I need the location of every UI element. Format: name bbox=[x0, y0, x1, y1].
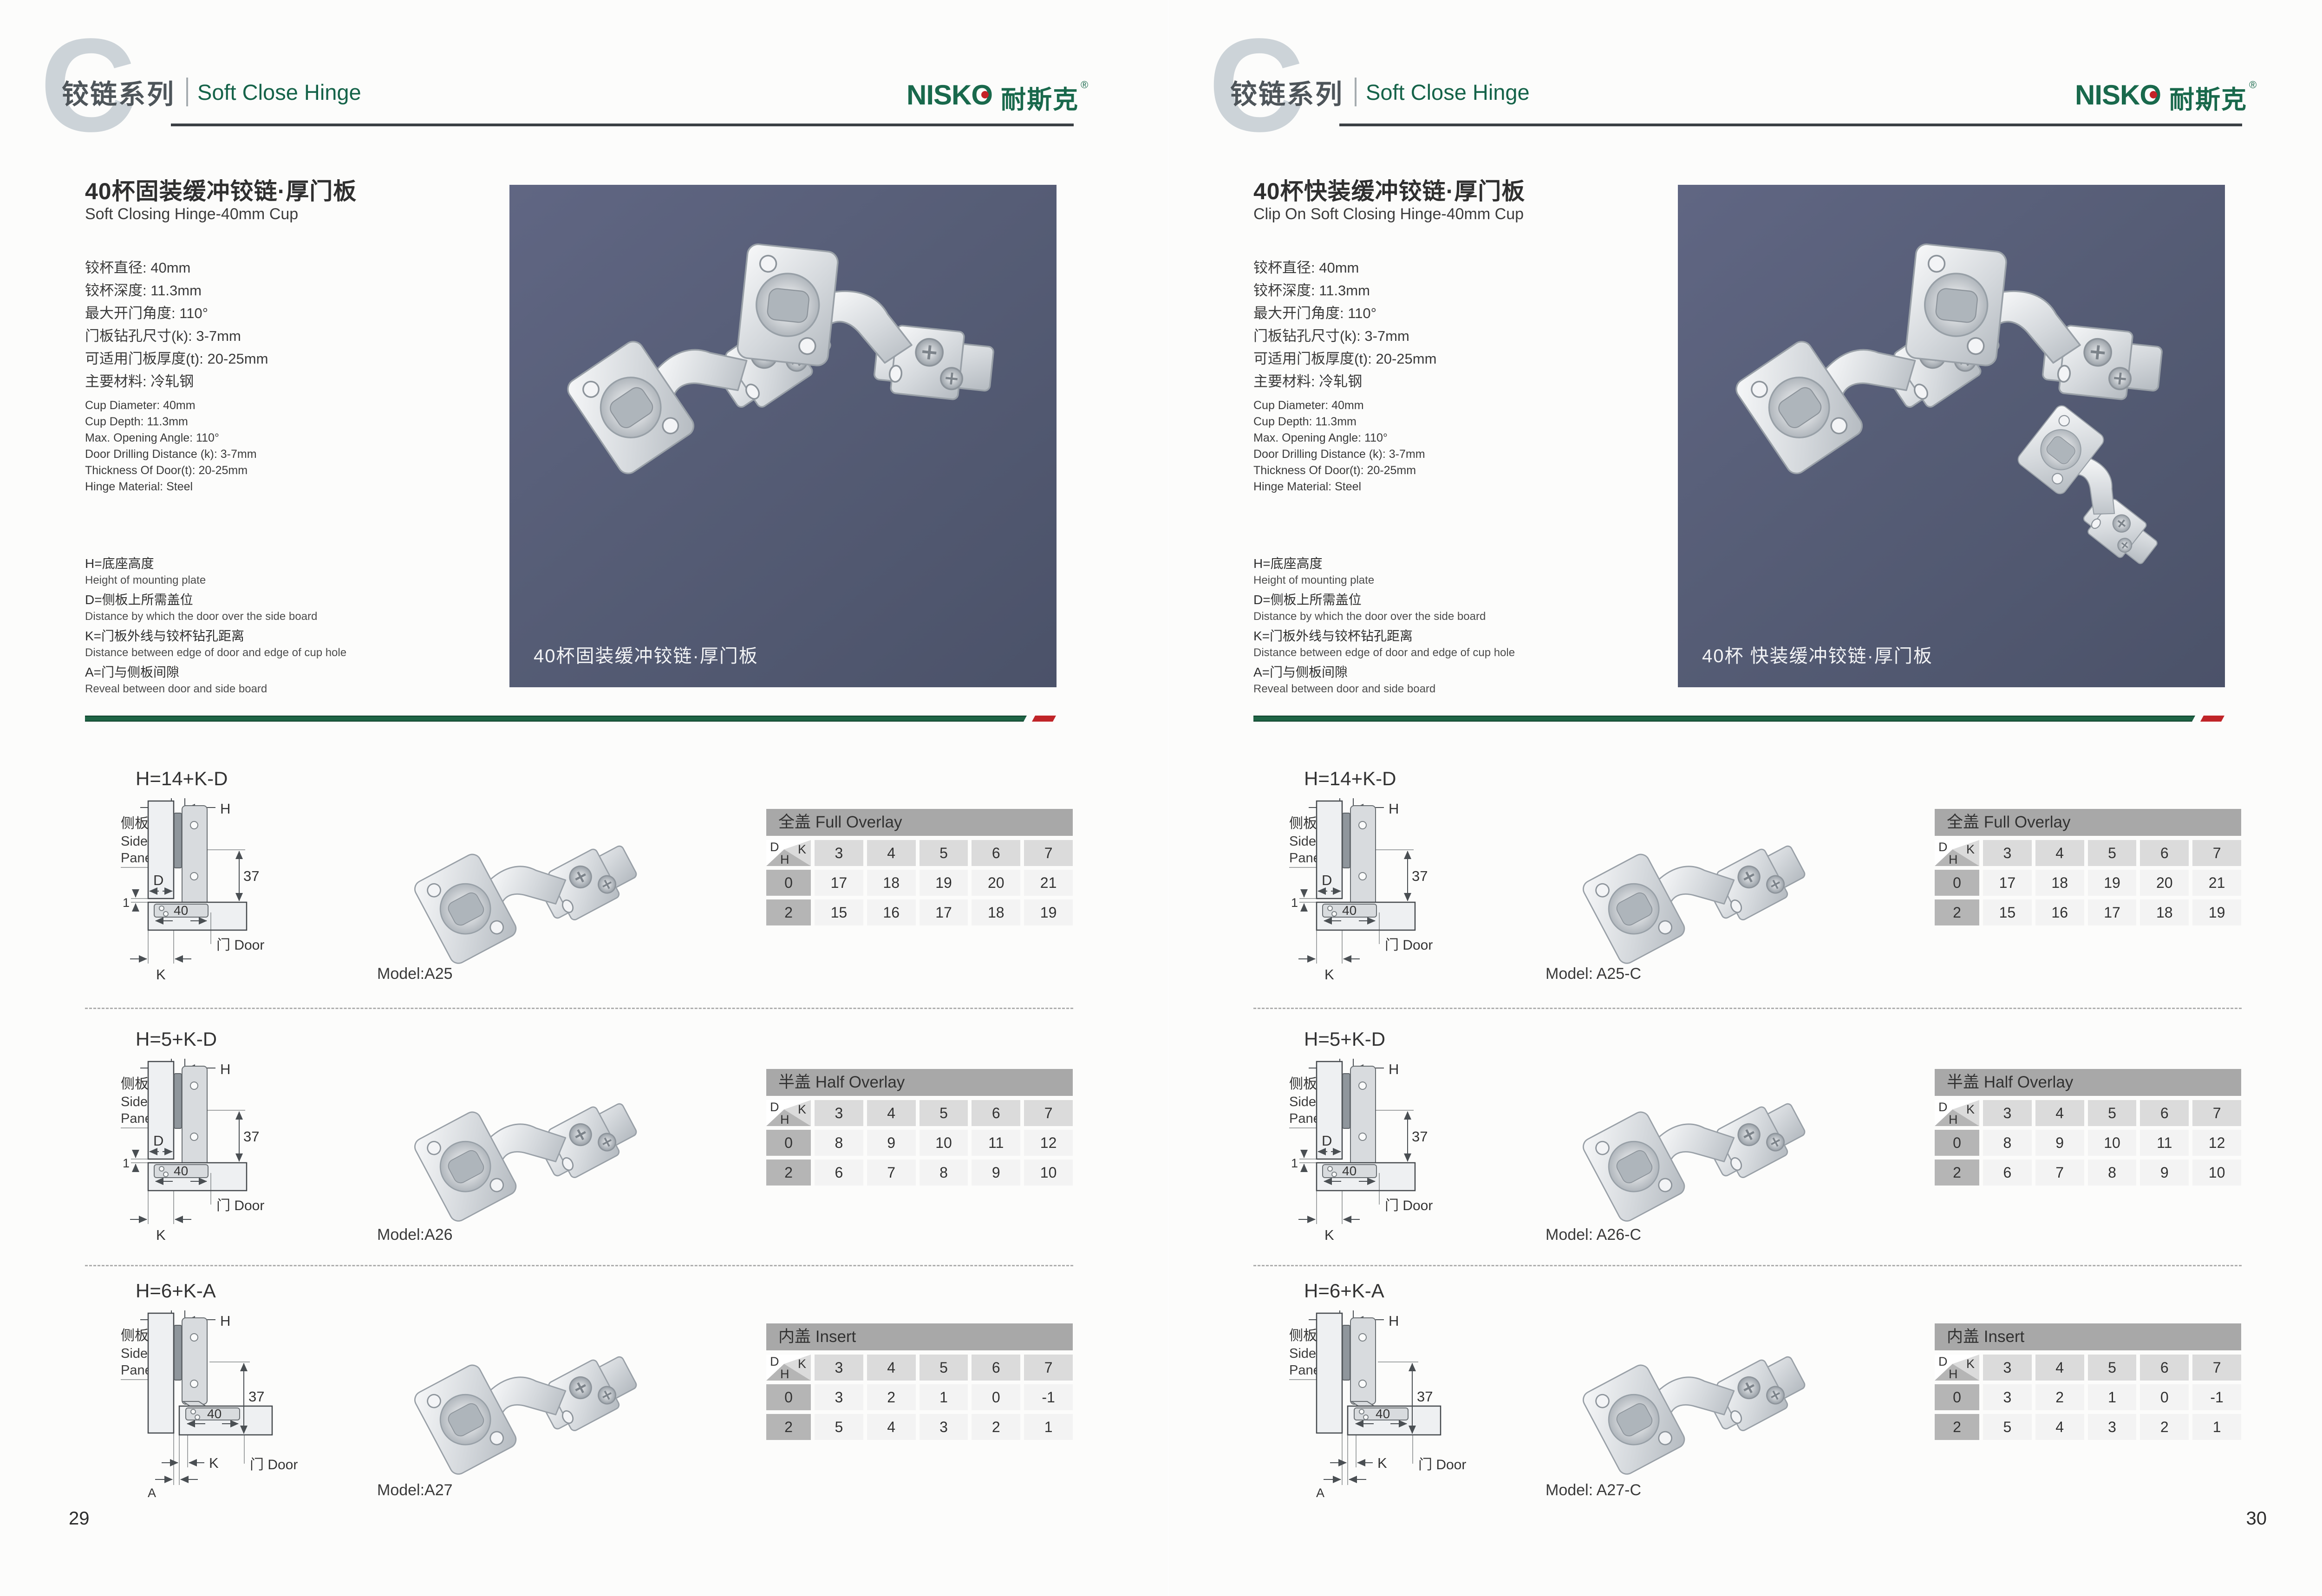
value-cell: 16 bbox=[867, 899, 916, 925]
photo-caption: 40杯 快装缓冲铰链·厚门板 bbox=[1702, 641, 1933, 668]
svg-text:Side: Side bbox=[121, 1346, 148, 1361]
overlay-table: 全盖 Full Overlay DKH345670171819202121516… bbox=[766, 809, 1073, 925]
k-header-cell: 5 bbox=[920, 1355, 968, 1381]
hinge-product-image bbox=[392, 1298, 652, 1484]
technical-diagram: H=5+K-D H 侧板 Side Panel 40 37 D 1 K 门 Do… bbox=[1273, 1015, 1530, 1250]
h-row-label-cell: 0 bbox=[1935, 1130, 1979, 1156]
spec-line: 最大开门角度: 110° bbox=[1253, 302, 1436, 325]
diagram-formula: H=14+K-D bbox=[136, 768, 228, 789]
svg-text:K: K bbox=[1377, 1455, 1387, 1471]
value-cell: 1 bbox=[2088, 1384, 2137, 1410]
value-cell: 2 bbox=[867, 1384, 916, 1410]
diagram-formula: H=5+K-D bbox=[136, 1028, 217, 1050]
value-cell: 18 bbox=[2035, 870, 2084, 896]
svg-text:Side: Side bbox=[1289, 1094, 1316, 1109]
spec-line: Door Drilling Distance (k): 3-7mm bbox=[1253, 446, 1425, 463]
value-cell: 17 bbox=[2088, 899, 2137, 925]
svg-text:1: 1 bbox=[1291, 1156, 1298, 1170]
overlay-table: 内盖 Insert DKH3456703210-1254321 bbox=[766, 1323, 1073, 1440]
svg-text:37: 37 bbox=[1412, 868, 1428, 884]
svg-text:门 Door: 门 Door bbox=[1418, 1457, 1466, 1472]
series-title-en: Soft Close Hinge bbox=[1366, 79, 1530, 105]
svg-text:侧板: 侧板 bbox=[121, 1328, 149, 1343]
svg-text:37: 37 bbox=[248, 1388, 264, 1405]
table-corner-cell: DKH bbox=[766, 840, 811, 866]
value-cell: 6 bbox=[815, 1160, 863, 1186]
table-title-en: Half Overlay bbox=[1984, 1073, 2074, 1091]
legend-zh: H=底座高度 bbox=[85, 554, 346, 573]
legend-en: Height of mounting plate bbox=[1253, 573, 1515, 587]
spec-line: 铰杯深度: 11.3mm bbox=[1253, 279, 1436, 302]
product-photo: 40杯 快装缓冲铰链·厚门板 bbox=[1678, 185, 2225, 687]
catalog-page-left: C 铰链系列 Soft Close Hinge NISKO 耐斯克 ® 40杯固… bbox=[0, 0, 1168, 1596]
legend-zh: D=侧板上所需盖位 bbox=[1253, 591, 1515, 609]
svg-text:门 Door: 门 Door bbox=[250, 1457, 298, 1472]
k-header-cell: 4 bbox=[2035, 840, 2084, 866]
model-label: Model:A25 bbox=[377, 965, 453, 983]
k-header-cell: 5 bbox=[2088, 1100, 2137, 1126]
k-header-cell: 3 bbox=[1983, 840, 2032, 866]
table-grid: DKH345670891011122678910 bbox=[1935, 1100, 2241, 1186]
specs-en: Cup Diameter: 40mm Cup Depth: 11.3mm Max… bbox=[85, 397, 257, 495]
table-title-zh: 半盖 bbox=[1947, 1073, 1979, 1091]
table-title: 全盖 Full Overlay bbox=[766, 809, 1073, 836]
value-cell: 17 bbox=[1983, 870, 2032, 896]
hinge-product-image bbox=[1561, 1298, 1821, 1484]
series-title-zh: 铰链系列 bbox=[62, 72, 175, 111]
row-divider bbox=[1253, 1265, 2242, 1266]
svg-text:1: 1 bbox=[123, 896, 130, 910]
table-grid: DKH345670171819202121516171819 bbox=[1935, 840, 2241, 925]
technical-diagram: H=14+K-D H 侧板 Side Panel 40 37 D 1 K 门 D… bbox=[1273, 755, 1530, 989]
k-header-cell: 7 bbox=[1024, 1100, 1073, 1126]
separator-green-bar bbox=[1253, 716, 2195, 722]
svg-text:Side: Side bbox=[1289, 834, 1316, 849]
k-header-cell: 3 bbox=[1983, 1100, 2032, 1126]
legend-zh: D=侧板上所需盖位 bbox=[85, 591, 346, 609]
logo-red-dot-icon bbox=[2150, 91, 2157, 98]
table-title: 全盖 Full Overlay bbox=[1935, 809, 2241, 836]
value-cell: 10 bbox=[1024, 1160, 1073, 1186]
spec-line: Max. Opening Angle: 110° bbox=[85, 430, 257, 446]
svg-text:门 Door: 门 Door bbox=[216, 1198, 264, 1213]
corner-k-label: K bbox=[798, 842, 806, 857]
row-divider bbox=[85, 1265, 1073, 1266]
k-header-cell: 4 bbox=[867, 1100, 916, 1126]
spec-line: Cup Diameter: 40mm bbox=[85, 397, 257, 414]
row-divider bbox=[1253, 1008, 2242, 1009]
table-title: 半盖 Half Overlay bbox=[1935, 1069, 2241, 1096]
corner-h-label: H bbox=[1949, 1367, 1958, 1381]
svg-text:37: 37 bbox=[243, 868, 259, 884]
table-title-zh: 内盖 bbox=[1947, 1328, 1979, 1346]
table-corner-cell: DKH bbox=[766, 1100, 811, 1126]
spec-line: Thickness Of Door(t): 20-25mm bbox=[85, 463, 257, 479]
value-cell: 3 bbox=[2088, 1414, 2137, 1440]
specs-en: Cup Diameter: 40mm Cup Depth: 11.3mm Max… bbox=[1253, 397, 1425, 495]
table-title-zh: 半盖 bbox=[778, 1073, 811, 1091]
value-cell: 7 bbox=[2035, 1160, 2084, 1186]
dimension-legend: H=底座高度 Height of mounting plate D=侧板上所需盖… bbox=[85, 554, 346, 699]
product-title-en: Soft Closing Hinge-40mm Cup bbox=[85, 205, 298, 223]
value-cell: 9 bbox=[972, 1160, 1020, 1186]
table-grid: DKH3456703210-1254321 bbox=[766, 1355, 1073, 1440]
table-grid: DKH3456703210-1254321 bbox=[1935, 1355, 2241, 1440]
value-cell: -1 bbox=[2192, 1384, 2241, 1410]
value-cell: 3 bbox=[815, 1384, 863, 1410]
table-title: 半盖 Half Overlay bbox=[766, 1069, 1073, 1096]
legend-zh: A=门与侧板间隙 bbox=[1253, 663, 1515, 682]
svg-text:40: 40 bbox=[207, 1407, 222, 1421]
overlay-table: 半盖 Half Overlay DKH345670891011122678910 bbox=[766, 1069, 1073, 1186]
value-cell: 3 bbox=[920, 1414, 968, 1440]
value-cell: 2 bbox=[972, 1414, 1020, 1440]
svg-text:H: H bbox=[220, 1061, 230, 1077]
k-header-cell: 6 bbox=[972, 840, 1020, 866]
legend-en: Height of mounting plate bbox=[85, 573, 346, 587]
table-title-zh: 全盖 bbox=[778, 813, 811, 831]
spec-line: Hinge Material: Steel bbox=[1253, 479, 1425, 495]
table-grid: DKH345670891011122678910 bbox=[766, 1100, 1073, 1186]
spec-line: 铰杯直径: 40mm bbox=[1253, 256, 1436, 279]
table-corner-cell: DKH bbox=[1935, 1355, 1979, 1381]
h-row-label-cell: 0 bbox=[1935, 1384, 1979, 1410]
spec-line: 主要材料: 冷轧钢 bbox=[1253, 370, 1436, 393]
value-cell: 16 bbox=[2035, 899, 2084, 925]
k-header-cell: 6 bbox=[2140, 840, 2189, 866]
value-cell: 10 bbox=[2192, 1160, 2241, 1186]
specs-zh: 铰杯直径: 40mm 铰杯深度: 11.3mm 最大开门角度: 110° 门板钻… bbox=[1253, 256, 1436, 393]
value-cell: 20 bbox=[972, 870, 1020, 896]
k-header-cell: 6 bbox=[2140, 1355, 2189, 1381]
product-title-en: Clip On Soft Closing Hinge-40mm Cup bbox=[1253, 205, 1524, 223]
svg-text:H: H bbox=[220, 1313, 230, 1329]
corner-k-label: K bbox=[1966, 842, 1975, 857]
legend-en: Distance by which the door over the side… bbox=[1253, 609, 1515, 624]
spec-line: 可适用门板厚度(t): 20-25mm bbox=[1253, 347, 1436, 370]
table-title-en: Insert bbox=[1984, 1328, 2025, 1346]
technical-diagram: H=6+K-A H 侧板 Side Panel 40 37 K A 门 Door bbox=[105, 1267, 361, 1501]
value-cell: 7 bbox=[867, 1160, 916, 1186]
value-cell: 12 bbox=[2192, 1130, 2241, 1156]
svg-text:D: D bbox=[1322, 1133, 1332, 1149]
svg-text:K: K bbox=[156, 966, 166, 983]
hinge-product-image bbox=[392, 787, 652, 973]
k-header-cell: 7 bbox=[1024, 840, 1073, 866]
product-photo: 40杯固装缓冲铰链·厚门板 bbox=[509, 185, 1057, 687]
table-title-en: Full Overlay bbox=[1984, 813, 2071, 831]
svg-text:37: 37 bbox=[243, 1128, 259, 1145]
value-cell: 1 bbox=[2192, 1414, 2241, 1440]
corner-k-label: K bbox=[798, 1357, 806, 1371]
svg-text:D: D bbox=[1322, 872, 1332, 888]
svg-text:H: H bbox=[220, 801, 230, 817]
h-row-label-cell: 2 bbox=[1935, 1160, 1979, 1186]
series-title-en: Soft Close Hinge bbox=[197, 79, 361, 105]
technical-diagram: H=5+K-D H 侧板 Side Panel 40 37 D 1 K 门 Do… bbox=[105, 1015, 361, 1250]
svg-text:Side: Side bbox=[1289, 1346, 1316, 1361]
product-title-zh: 40杯固装缓冲铰链·厚门板 bbox=[85, 173, 357, 206]
svg-text:侧板: 侧板 bbox=[1289, 816, 1317, 831]
k-header-cell: 7 bbox=[2192, 1100, 2241, 1126]
corner-h-label: H bbox=[780, 1113, 789, 1126]
corner-h-label: H bbox=[780, 853, 789, 866]
value-cell: 8 bbox=[1983, 1130, 2032, 1156]
corner-k-label: K bbox=[1966, 1102, 1975, 1117]
legend-zh: K=门板外线与铰杯钻孔距离 bbox=[85, 627, 346, 645]
model-label: Model: A27-C bbox=[1546, 1481, 1641, 1499]
svg-text:H: H bbox=[1389, 801, 1399, 817]
hinge-product-image bbox=[1561, 1045, 1821, 1231]
h-row-label-cell: 2 bbox=[1935, 1414, 1979, 1440]
legend-en: Reveal between door and side board bbox=[1253, 682, 1515, 696]
header-divider bbox=[1355, 78, 1357, 106]
svg-text:1: 1 bbox=[1291, 896, 1298, 910]
value-cell: 9 bbox=[2035, 1130, 2084, 1156]
k-header-cell: 6 bbox=[972, 1100, 1020, 1126]
model-label: Model: A25-C bbox=[1546, 965, 1641, 983]
header-rule bbox=[171, 124, 1074, 126]
table-grid: DKH345670171819202121516171819 bbox=[766, 840, 1073, 925]
k-header-cell: 4 bbox=[2035, 1100, 2084, 1126]
svg-text:Side: Side bbox=[121, 1094, 148, 1109]
corner-d-label: D bbox=[1938, 1100, 1948, 1114]
overlay-table: 内盖 Insert DKH3456703210-1254321 bbox=[1935, 1323, 2241, 1440]
header-rule bbox=[1339, 124, 2242, 126]
svg-text:侧板: 侧板 bbox=[121, 816, 149, 831]
svg-text:40: 40 bbox=[1342, 1164, 1357, 1178]
model-label: Model:A26 bbox=[377, 1226, 453, 1244]
value-cell: 18 bbox=[972, 899, 1020, 925]
value-cell: 5 bbox=[1983, 1414, 2032, 1440]
value-cell: 18 bbox=[2140, 899, 2189, 925]
table-title-en: Insert bbox=[815, 1328, 856, 1346]
row-divider bbox=[85, 1008, 1073, 1009]
value-cell: 6 bbox=[1983, 1160, 2032, 1186]
k-header-cell: 4 bbox=[2035, 1355, 2084, 1381]
overlay-table: 半盖 Half Overlay DKH345670891011122678910 bbox=[1935, 1069, 2241, 1186]
svg-text:37: 37 bbox=[1412, 1128, 1428, 1145]
spec-line: Door Drilling Distance (k): 3-7mm bbox=[85, 446, 257, 463]
value-cell: -1 bbox=[1024, 1384, 1073, 1410]
svg-text:40: 40 bbox=[1376, 1407, 1390, 1421]
brand-logo-zh: 耐斯克 bbox=[1001, 79, 1079, 116]
brand-logo-text: NISKO bbox=[2075, 79, 2161, 111]
spec-line: 铰杯直径: 40mm bbox=[85, 256, 268, 279]
value-cell: 1 bbox=[1024, 1414, 1073, 1440]
value-cell: 17 bbox=[920, 899, 968, 925]
spec-line: 门板钻孔尺寸(k): 3-7mm bbox=[85, 325, 268, 347]
hinge-product-image bbox=[392, 1045, 652, 1231]
value-cell: 9 bbox=[2140, 1160, 2189, 1186]
svg-text:门 Door: 门 Door bbox=[1385, 938, 1433, 953]
value-cell: 19 bbox=[2088, 870, 2137, 896]
spec-line: 门板钻孔尺寸(k): 3-7mm bbox=[1253, 325, 1436, 347]
brand-logo-zh: 耐斯克 bbox=[2169, 79, 2247, 116]
spec-line: Cup Depth: 11.3mm bbox=[85, 414, 257, 430]
k-header-cell: 3 bbox=[815, 1355, 863, 1381]
value-cell: 4 bbox=[867, 1414, 916, 1440]
value-cell: 5 bbox=[815, 1414, 863, 1440]
separator-green-bar bbox=[85, 716, 1027, 722]
diagram-formula: H=6+K-A bbox=[1304, 1280, 1384, 1302]
legend-zh: A=门与侧板间隙 bbox=[85, 663, 346, 682]
value-cell: 19 bbox=[1024, 899, 1073, 925]
k-header-cell: 4 bbox=[867, 840, 916, 866]
corner-k-label: K bbox=[798, 1102, 806, 1117]
value-cell: 2 bbox=[2035, 1384, 2084, 1410]
corner-h-label: H bbox=[1949, 1113, 1958, 1126]
k-header-cell: 5 bbox=[920, 1100, 968, 1126]
table-title-zh: 内盖 bbox=[778, 1328, 811, 1346]
k-header-cell: 3 bbox=[1983, 1355, 2032, 1381]
k-header-cell: 3 bbox=[815, 1100, 863, 1126]
table-corner-cell: DKH bbox=[766, 1355, 811, 1381]
svg-text:H: H bbox=[1389, 1061, 1399, 1077]
spec-line: Cup Diameter: 40mm bbox=[1253, 397, 1425, 414]
h-row-label-cell: 2 bbox=[766, 899, 811, 925]
corner-h-label: H bbox=[780, 1367, 789, 1381]
value-cell: 11 bbox=[2140, 1130, 2189, 1156]
svg-text:侧板: 侧板 bbox=[1289, 1076, 1317, 1092]
corner-k-label: K bbox=[1966, 1357, 1975, 1371]
spec-line: 最大开门角度: 110° bbox=[85, 302, 268, 325]
k-header-cell: 7 bbox=[2192, 1355, 2241, 1381]
h-row-label-cell: 0 bbox=[1935, 870, 1979, 896]
svg-text:K: K bbox=[1324, 1227, 1334, 1243]
svg-text:门 Door: 门 Door bbox=[1385, 1198, 1433, 1213]
separator-red-bar bbox=[2200, 716, 2224, 722]
separator-red-bar bbox=[1032, 716, 1056, 722]
brand-logo-text: NISKO bbox=[907, 79, 992, 111]
value-cell: 8 bbox=[2088, 1160, 2137, 1186]
corner-h-label: H bbox=[1949, 853, 1958, 866]
table-title-zh: 全盖 bbox=[1947, 813, 1979, 831]
legend-en: Reveal between door and side board bbox=[85, 682, 346, 696]
value-cell: 20 bbox=[2140, 870, 2189, 896]
svg-text:1: 1 bbox=[123, 1156, 130, 1170]
table-title: 内盖 Insert bbox=[1935, 1323, 2241, 1350]
svg-text:D: D bbox=[153, 1133, 163, 1149]
corner-d-label: D bbox=[770, 840, 779, 854]
value-cell: 2 bbox=[2140, 1414, 2189, 1440]
page-number: 30 bbox=[2246, 1508, 2267, 1529]
spec-line: 主要材料: 冷轧钢 bbox=[85, 370, 268, 393]
value-cell: 15 bbox=[815, 899, 863, 925]
svg-text:37: 37 bbox=[1417, 1388, 1433, 1405]
value-cell: 18 bbox=[867, 870, 916, 896]
value-cell: 8 bbox=[920, 1160, 968, 1186]
k-header-cell: 7 bbox=[2192, 840, 2241, 866]
k-header-cell: 6 bbox=[2140, 1100, 2189, 1126]
model-label: Model:A27 bbox=[377, 1481, 453, 1499]
dimension-legend: H=底座高度 Height of mounting plate D=侧板上所需盖… bbox=[1253, 554, 1515, 699]
table-corner-cell: DKH bbox=[1935, 840, 1979, 866]
k-header-cell: 4 bbox=[867, 1355, 916, 1381]
svg-text:H: H bbox=[1389, 1313, 1399, 1329]
value-cell: 21 bbox=[2192, 870, 2241, 896]
svg-text:D: D bbox=[153, 872, 163, 888]
value-cell: 21 bbox=[1024, 870, 1073, 896]
svg-text:K: K bbox=[156, 1227, 166, 1243]
svg-text:门 Door: 门 Door bbox=[216, 938, 264, 953]
corner-d-label: D bbox=[1938, 1355, 1948, 1369]
page-header: 铰链系列 Soft Close Hinge bbox=[62, 73, 361, 111]
model-label: Model: A26-C bbox=[1546, 1226, 1641, 1244]
value-cell: 0 bbox=[2140, 1384, 2189, 1410]
value-cell: 10 bbox=[920, 1130, 968, 1156]
value-cell: 3 bbox=[1983, 1384, 2032, 1410]
h-row-label-cell: 0 bbox=[766, 870, 811, 896]
registered-mark: ® bbox=[1081, 79, 1088, 91]
registered-mark: ® bbox=[2249, 79, 2257, 91]
spec-line: 可适用门板厚度(t): 20-25mm bbox=[85, 347, 268, 370]
h-row-label-cell: 0 bbox=[766, 1130, 811, 1156]
corner-d-label: D bbox=[770, 1100, 779, 1114]
value-cell: 8 bbox=[815, 1130, 863, 1156]
h-row-label-cell: 2 bbox=[766, 1160, 811, 1186]
value-cell: 12 bbox=[1024, 1130, 1073, 1156]
h-row-label-cell: 2 bbox=[1935, 899, 1979, 925]
h-row-label-cell: 2 bbox=[766, 1414, 811, 1440]
legend-en: Distance by which the door over the side… bbox=[85, 609, 346, 624]
value-cell: 15 bbox=[1983, 899, 2032, 925]
svg-text:侧板: 侧板 bbox=[121, 1076, 149, 1092]
hinge-product-image bbox=[1561, 787, 1821, 973]
svg-text:K: K bbox=[209, 1455, 219, 1471]
specs-zh: 铰杯直径: 40mm 铰杯深度: 11.3mm 最大开门角度: 110° 门板钻… bbox=[85, 256, 268, 393]
header-divider bbox=[186, 78, 188, 106]
table-title-en: Full Overlay bbox=[815, 813, 902, 831]
value-cell: 17 bbox=[815, 870, 863, 896]
corner-d-label: D bbox=[1938, 840, 1948, 854]
k-header-cell: 3 bbox=[815, 840, 863, 866]
catalog-page-right: C 铰链系列 Soft Close Hinge NISKO 耐斯克 ® 40杯快… bbox=[1168, 0, 2322, 1596]
brand-logo: NISKO 耐斯克 ® bbox=[907, 79, 1088, 116]
legend-zh: H=底座高度 bbox=[1253, 554, 1515, 573]
svg-text:40: 40 bbox=[1342, 903, 1357, 918]
product-title-zh: 40杯快装缓冲铰链·厚门板 bbox=[1253, 173, 1525, 206]
value-cell: 9 bbox=[867, 1130, 916, 1156]
technical-diagram: H=6+K-A H 侧板 Side Panel 40 37 K A 门 Door bbox=[1273, 1267, 1530, 1501]
k-header-cell: 5 bbox=[2088, 840, 2137, 866]
svg-text:A: A bbox=[148, 1486, 156, 1500]
k-header-cell: 5 bbox=[2088, 1355, 2137, 1381]
spec-line: Cup Depth: 11.3mm bbox=[1253, 414, 1425, 430]
table-corner-cell: DKH bbox=[1935, 1100, 1979, 1126]
series-title-zh: 铰链系列 bbox=[1230, 72, 1344, 111]
svg-text:40: 40 bbox=[174, 903, 188, 918]
table-title-en: Half Overlay bbox=[815, 1073, 905, 1091]
k-header-cell: 7 bbox=[1024, 1355, 1073, 1381]
value-cell: 11 bbox=[972, 1130, 1020, 1156]
spec-line: Max. Opening Angle: 110° bbox=[1253, 430, 1425, 446]
svg-text:A: A bbox=[1316, 1486, 1324, 1500]
svg-text:K: K bbox=[1324, 966, 1334, 983]
legend-zh: K=门板外线与铰杯钻孔距离 bbox=[1253, 627, 1515, 645]
svg-text:40: 40 bbox=[174, 1164, 188, 1178]
value-cell: 4 bbox=[2035, 1414, 2084, 1440]
diagram-formula: H=6+K-A bbox=[136, 1280, 216, 1302]
k-header-cell: 5 bbox=[920, 840, 968, 866]
corner-d-label: D bbox=[770, 1355, 779, 1369]
k-header-cell: 6 bbox=[972, 1355, 1020, 1381]
svg-text:Side: Side bbox=[121, 834, 148, 849]
legend-en: Distance between edge of door and edge o… bbox=[85, 645, 346, 660]
spec-line: 铰杯深度: 11.3mm bbox=[85, 279, 268, 302]
overlay-table: 全盖 Full Overlay DKH345670171819202121516… bbox=[1935, 809, 2241, 925]
svg-text:侧板: 侧板 bbox=[1289, 1328, 1317, 1343]
